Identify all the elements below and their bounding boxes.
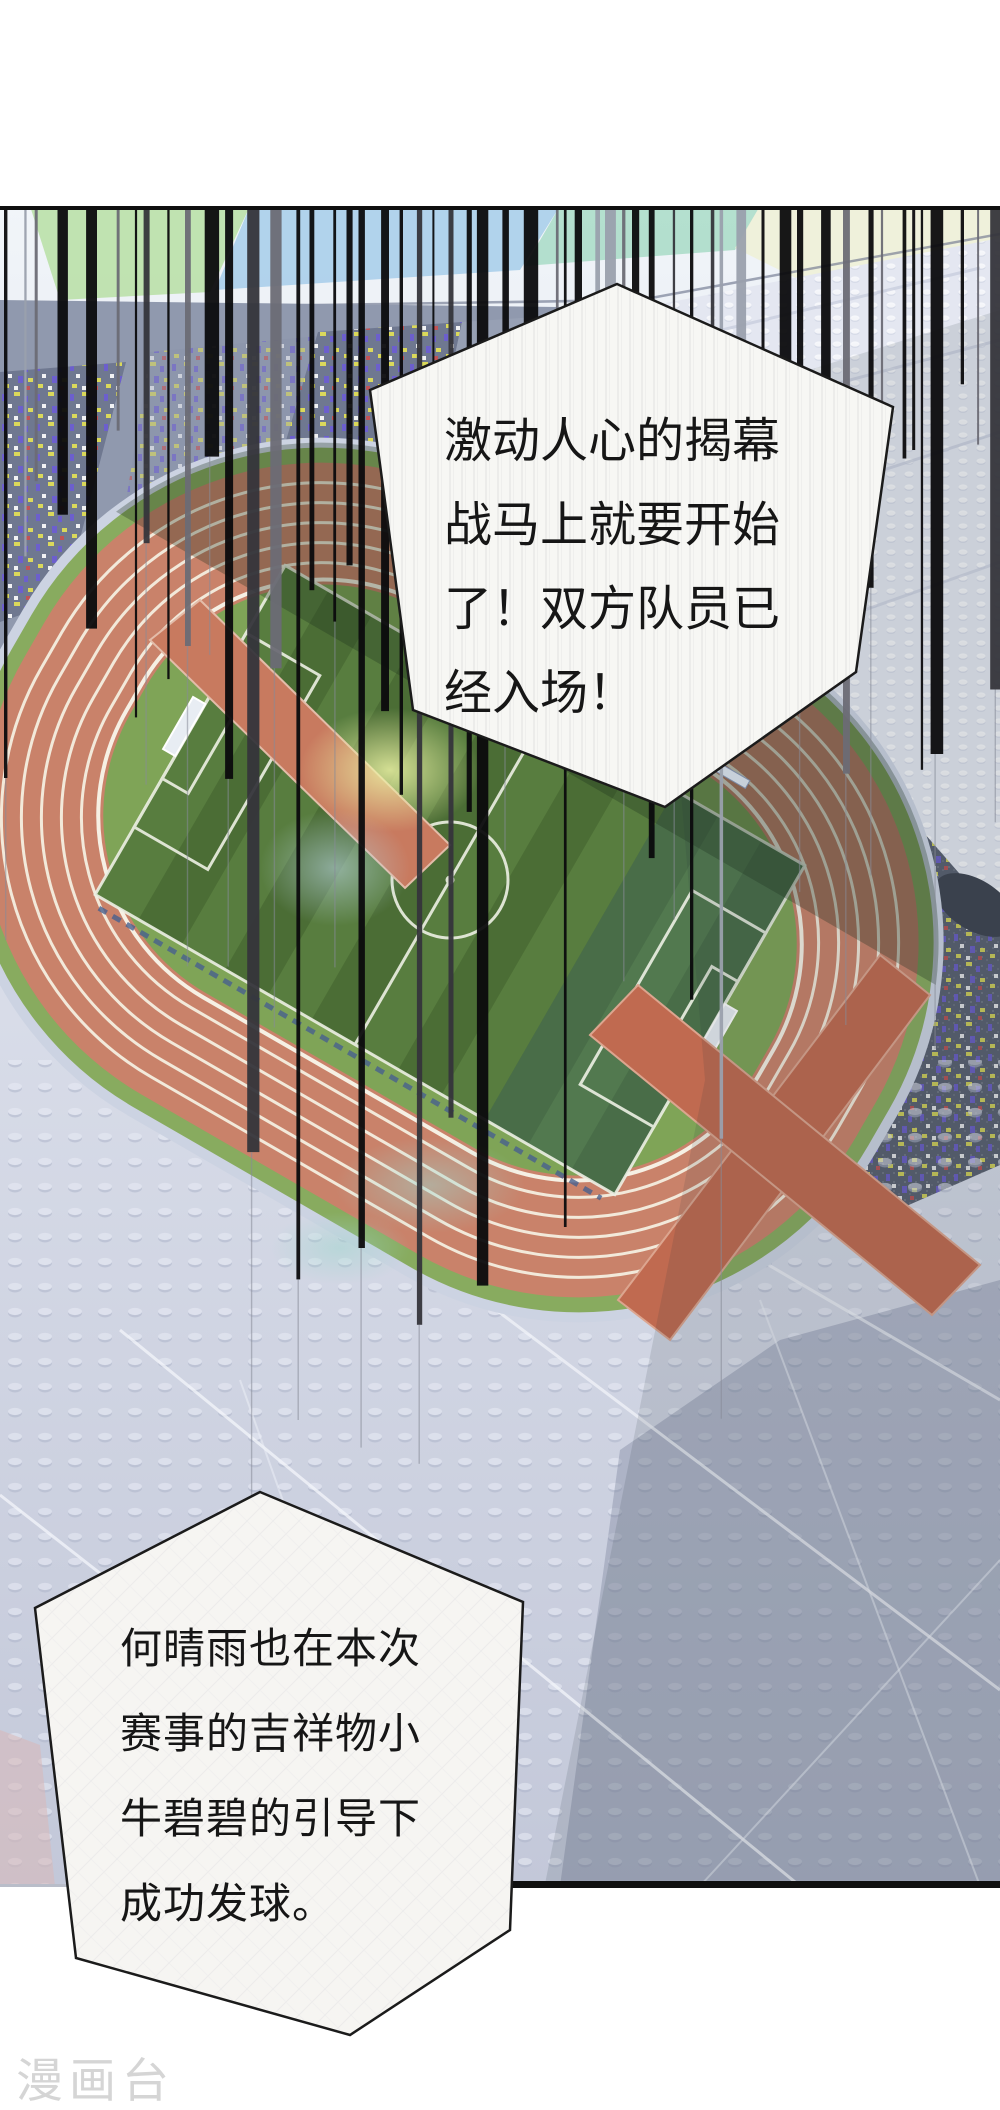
bubble-line: 战马上就要开始: [444, 484, 780, 568]
speed-line: [912, 208, 915, 450]
speed-line: [35, 208, 38, 481]
speed-line: [205, 208, 219, 457]
speed-line: [931, 208, 944, 754]
panel-border-bottom-right: [498, 1881, 1000, 1888]
speed-line: [117, 208, 120, 431]
speed-line: [145, 543, 146, 785]
speed-line: [310, 208, 315, 590]
bubble-line: 激动人心的揭幕: [444, 400, 780, 484]
bubble-line: 经入场！: [444, 652, 780, 736]
speed-line: [934, 754, 935, 1049]
speed-line: [821, 208, 831, 390]
speed-line: [247, 208, 259, 1152]
speed-line: [4, 208, 7, 778]
speed-line: [990, 208, 1000, 690]
speed-line: [167, 208, 169, 679]
speed-line: [334, 622, 335, 968]
speed-line: [86, 208, 97, 629]
speed-line: [870, 588, 871, 876]
speed-line: [298, 1279, 299, 1420]
speed-line: [135, 208, 137, 717]
bubble-line: 成功发球。: [120, 1861, 421, 1946]
speed-line: [845, 774, 846, 1025]
speed-line: [225, 208, 233, 779]
speed-line: [977, 208, 979, 445]
speed-line: [274, 668, 275, 1027]
speed-line: [228, 779, 229, 967]
speed-line: [721, 1139, 722, 1419]
speed-line: [187, 646, 188, 966]
speed-line: [5, 778, 6, 940]
speed-line: [144, 208, 150, 543]
bubble-line: 赛事的吉祥物小: [120, 1691, 421, 1776]
bubble-line: 了！双方队员已: [444, 568, 780, 652]
speed-line: [347, 208, 353, 565]
speed-line: [251, 1152, 252, 1500]
bubble-line: 牛碧碧的引导下: [120, 1776, 421, 1861]
speed-line: [209, 457, 210, 655]
speed-line: [185, 208, 191, 646]
speed-line: [921, 208, 923, 770]
speed-line: [58, 208, 68, 515]
panel-border-top: [0, 206, 1000, 210]
speed-line: [270, 208, 281, 668]
comic-page: 激动人心的揭幕 战马上就要开始 了！双方队员已 经入场！ 何晴雨也在本次 赛事的…: [0, 0, 1000, 2110]
speed-line: [961, 208, 964, 384]
speed-line: [359, 208, 365, 1248]
bubble-line: 何晴雨也在本次: [120, 1606, 421, 1691]
watermark: 漫画台: [16, 2042, 175, 2110]
speed-line: [333, 208, 336, 622]
speed-line: [360, 1248, 361, 1448]
speech-bubble-top-text: 激动人心的揭幕 战马上就要开始 了！双方队员已 经入场！: [444, 400, 780, 736]
speed-line: [419, 1325, 420, 1464]
speed-line: [296, 208, 300, 1279]
speed-line: [24, 208, 26, 556]
speech-bubble-bottom-text: 何晴雨也在本次 赛事的吉祥物小 牛碧碧的引导下 成功发球。: [120, 1606, 421, 1946]
speed-line: [995, 690, 996, 823]
speed-line: [903, 208, 907, 459]
